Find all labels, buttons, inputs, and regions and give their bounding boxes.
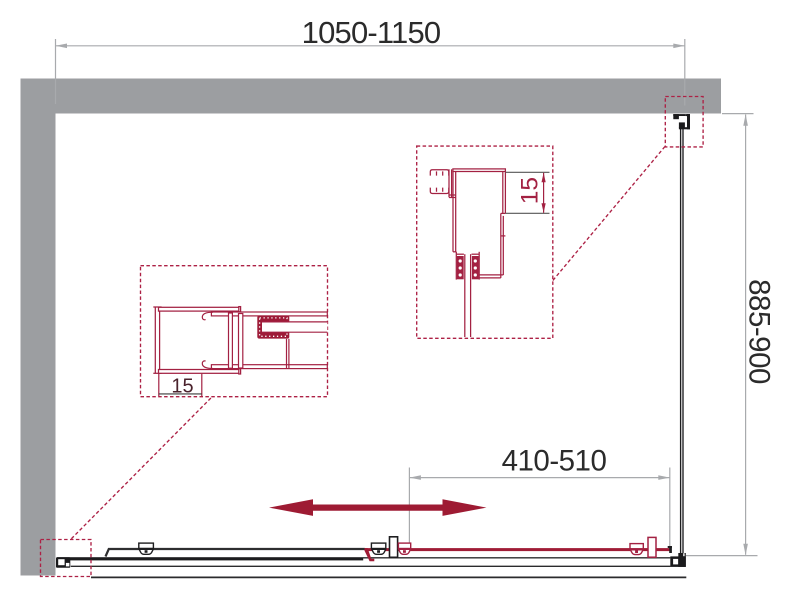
svg-text:410-510: 410-510 — [502, 445, 607, 478]
svg-text:15: 15 — [171, 375, 193, 397]
svg-text:1050-1150: 1050-1150 — [302, 15, 441, 50]
svg-text:885-900: 885-900 — [743, 279, 776, 384]
svg-text:15: 15 — [517, 177, 544, 204]
